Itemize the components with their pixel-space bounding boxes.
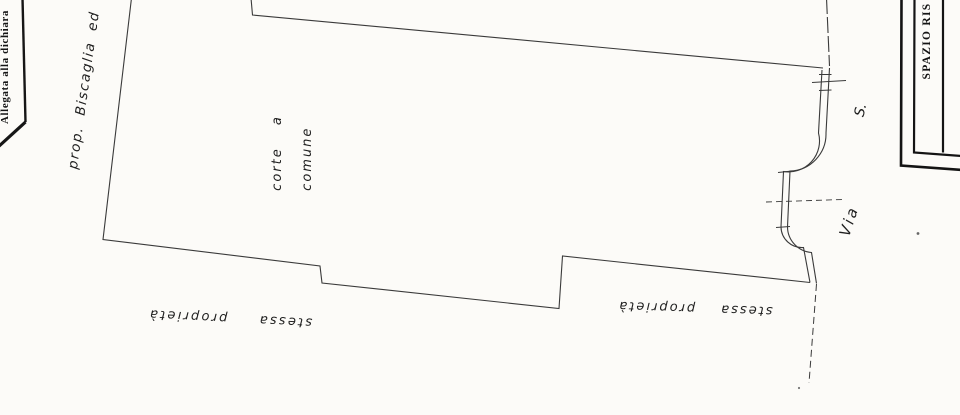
plan-drawing [0,0,960,415]
scan-speck [798,387,800,389]
form-left-header-text: Allegata alla dichiara [0,10,11,124]
niche-dashed-crossline [766,200,843,203]
street-wall-outer [788,68,830,284]
parcel-top-boundary [251,0,823,68]
scan-speck [917,232,920,235]
form-border-left-diagonal [0,122,26,148]
street-wall-inner [781,70,822,283]
form-border-left-vertical [23,0,26,122]
parcel-outline [103,0,810,309]
courtyard-label-line1: corte a [263,115,293,191]
wall-rung-bottom [819,90,832,91]
courtyard-label: corte a comune [263,115,323,191]
street-edge-upper [827,0,830,66]
street-edge-lower-dashed [809,284,817,383]
courtyard-label-line2: comune [293,115,323,191]
scanned-plan-page: Allegata alla dichiara SPAZIO RIS prop. … [0,0,960,415]
reserved-space-box-label: SPAZIO RIS [921,2,933,79]
